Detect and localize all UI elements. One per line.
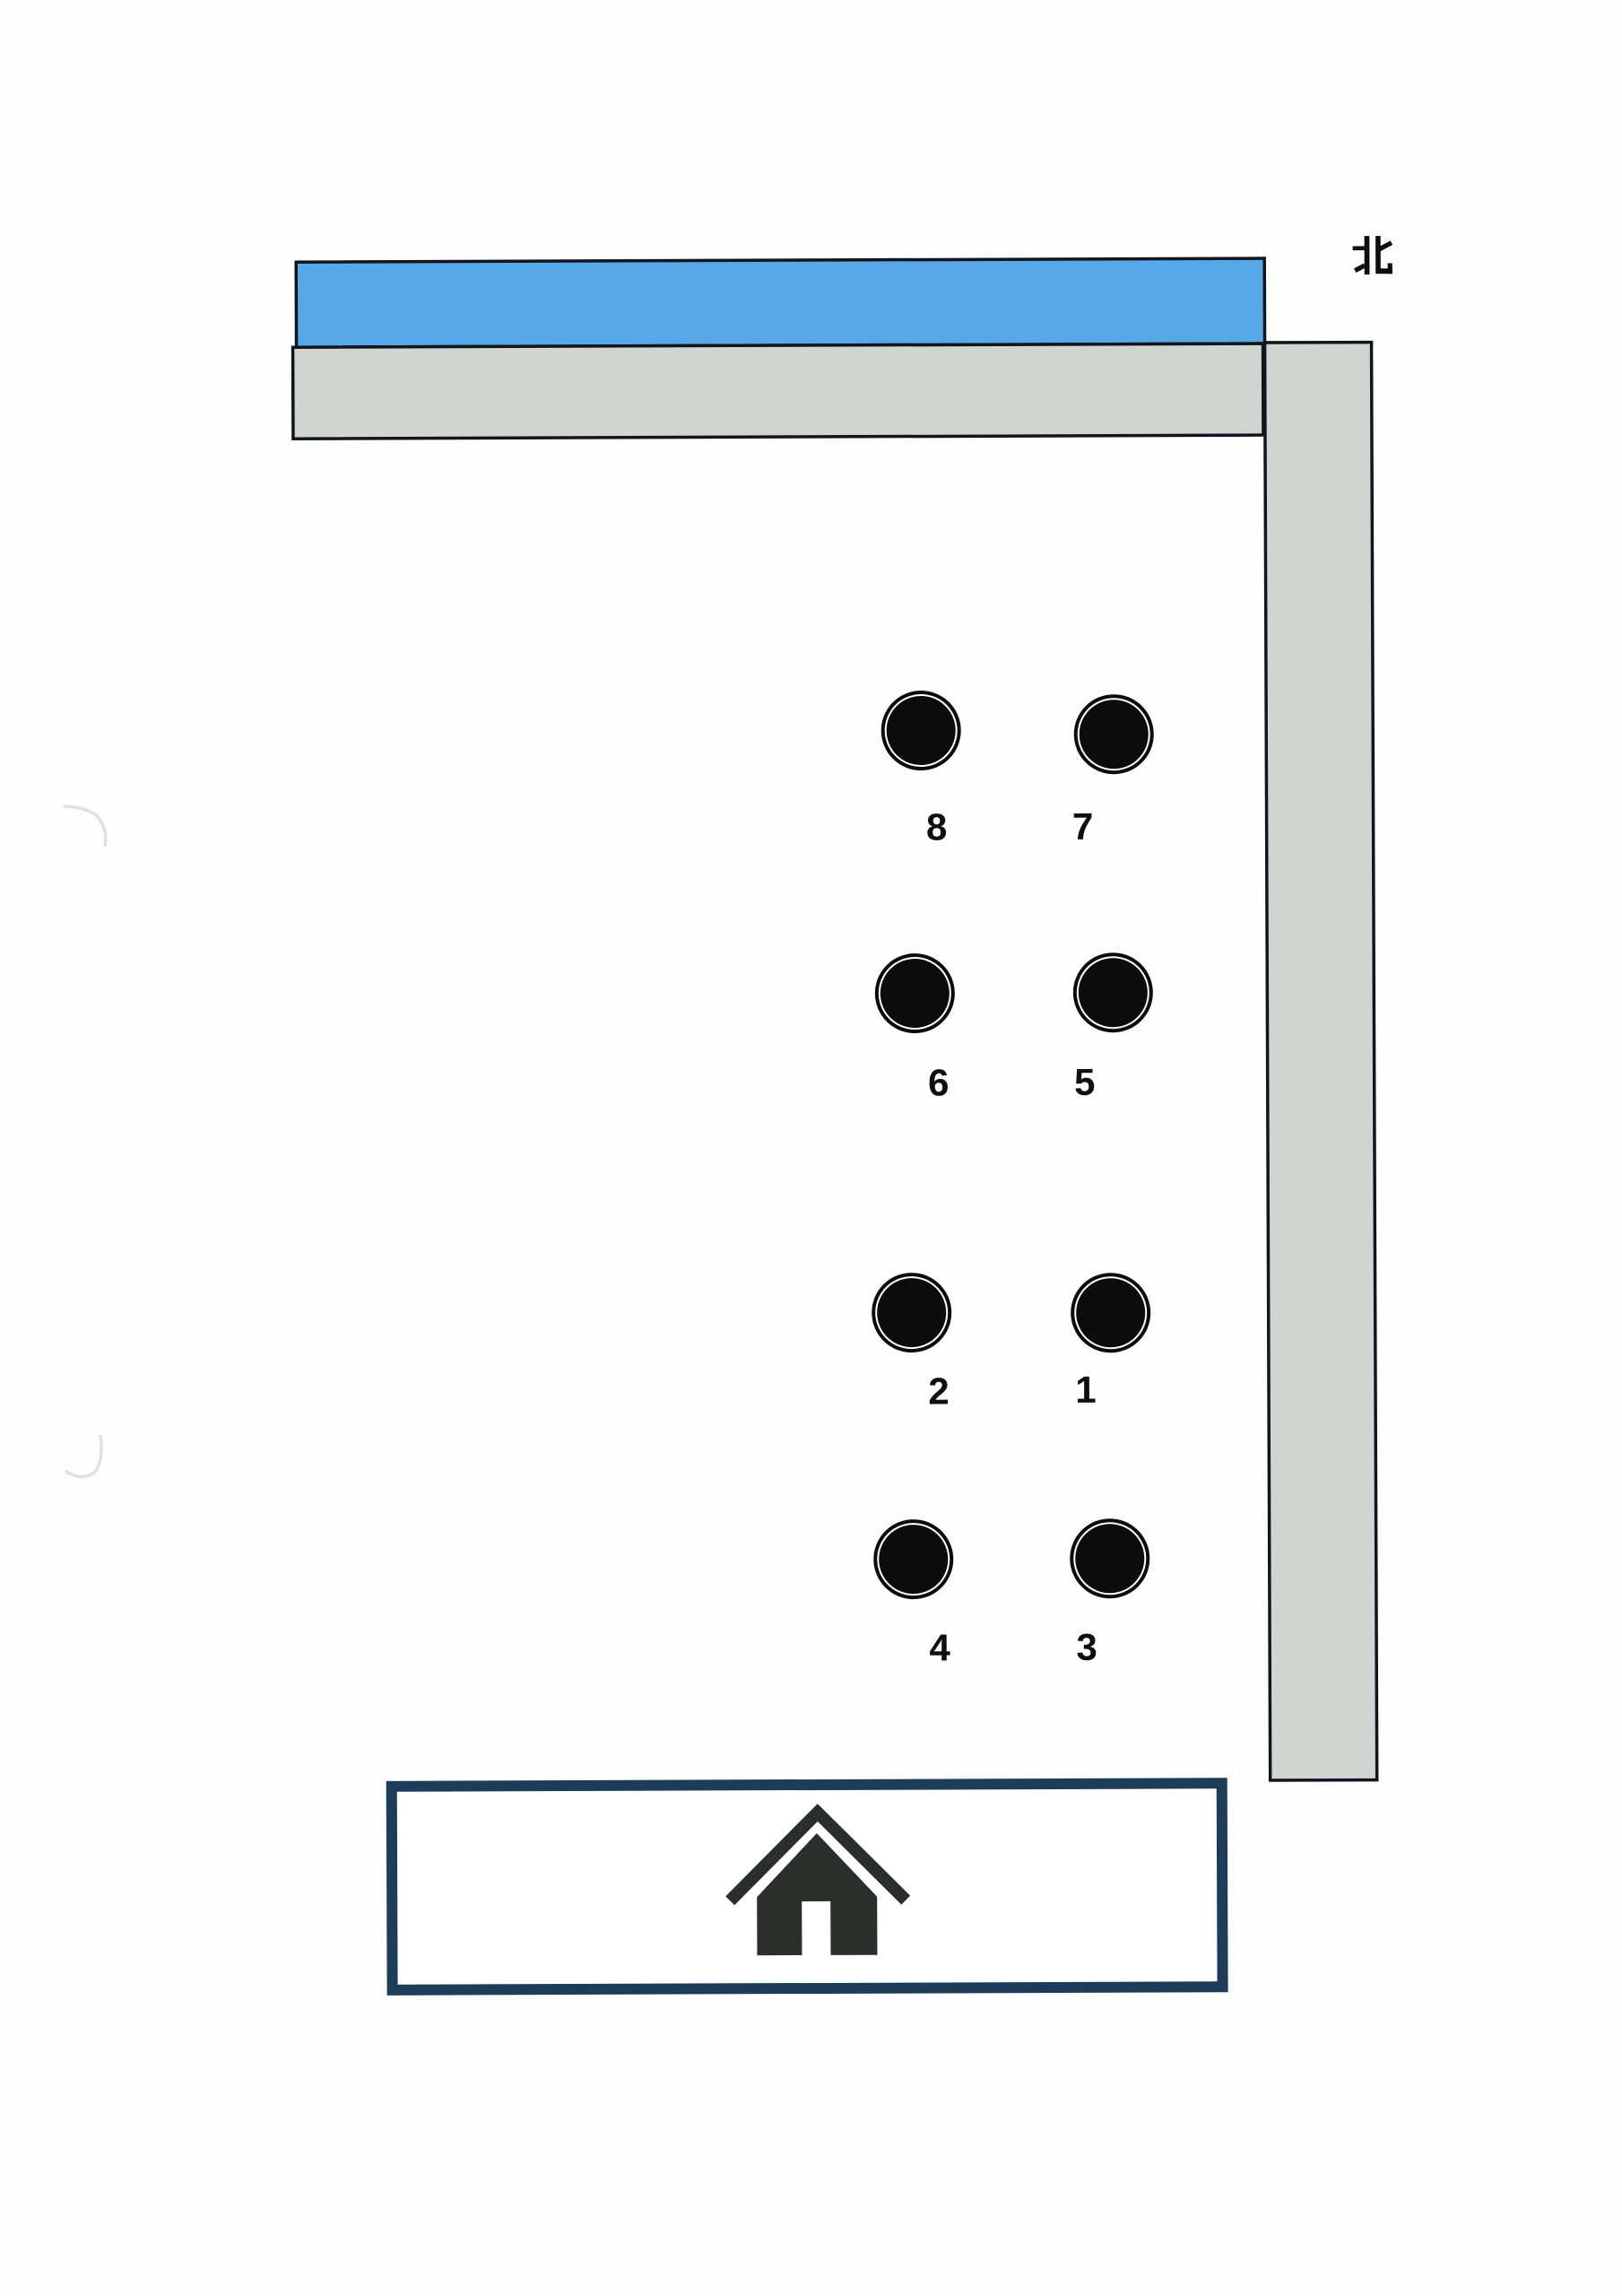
svg-text:8: 8 [926,805,948,848]
svg-text:7: 7 [1072,805,1094,848]
svg-text:2: 2 [928,1370,950,1412]
svg-text:4: 4 [929,1626,950,1668]
svg-text:6: 6 [928,1061,950,1103]
svg-text:5: 5 [1074,1061,1096,1103]
svg-text:3: 3 [1076,1626,1097,1668]
svg-text:1: 1 [1075,1369,1097,1411]
